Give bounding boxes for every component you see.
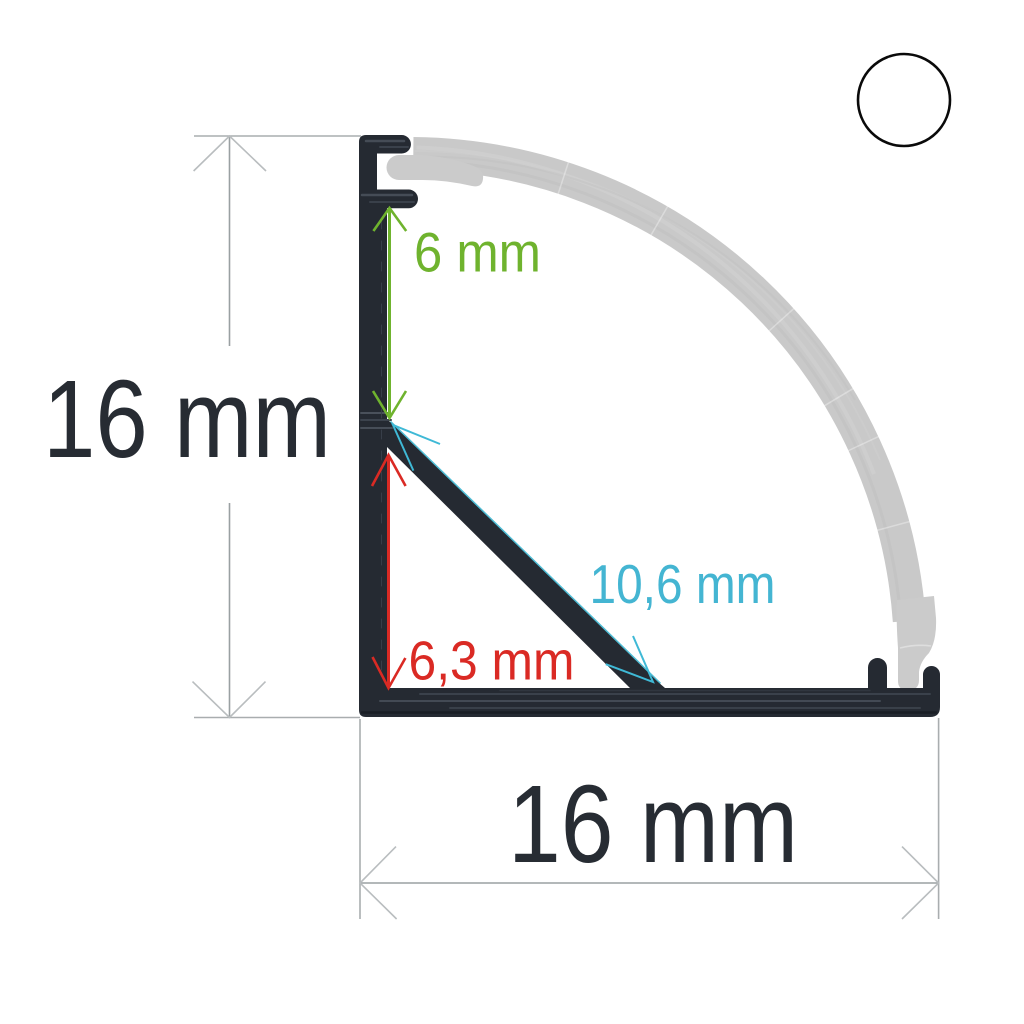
svg-text:10,6 mm: 10,6 mm xyxy=(590,553,776,615)
svg-text:16 mm: 16 mm xyxy=(43,358,331,481)
svg-text:6,3 mm: 6,3 mm xyxy=(409,630,575,692)
svg-text:6 mm: 6 mm xyxy=(414,221,541,284)
svg-text:16 mm: 16 mm xyxy=(508,763,798,886)
